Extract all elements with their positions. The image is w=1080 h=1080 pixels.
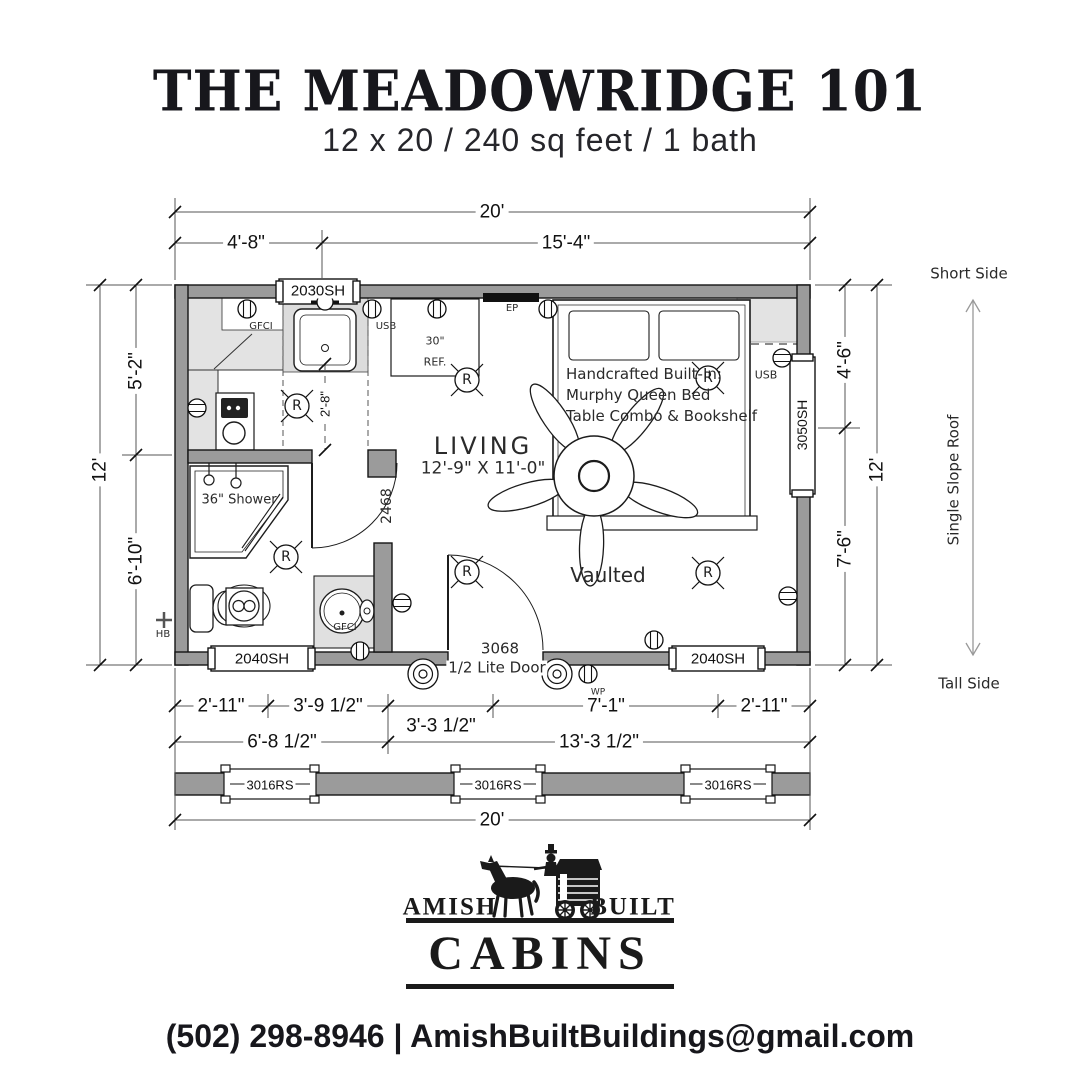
dim-left-upper: 5'-2" bbox=[127, 348, 146, 394]
recessed-light-icon: R bbox=[703, 566, 713, 580]
dim-wall-overall: 20' bbox=[476, 811, 509, 830]
brand-name: CABINS bbox=[428, 930, 651, 978]
bed-note-line2: Murphy Queen Bed bbox=[566, 386, 710, 404]
logo-horse-wagon-icon bbox=[480, 844, 602, 920]
roof-slope-label: Single Slope Roof bbox=[947, 415, 962, 546]
window-transom-3: 3016RS bbox=[703, 779, 754, 792]
electrical-panel bbox=[483, 293, 539, 302]
dim-bottom-3: 3'-3 1/2" bbox=[402, 717, 480, 736]
label-electrical-panel: EP bbox=[506, 304, 518, 314]
dim-right-lower: 7'-6" bbox=[836, 526, 855, 572]
label-gfci-kitchen: GFCI bbox=[249, 322, 272, 332]
hose-bib-icon bbox=[156, 612, 172, 628]
brand-word-right: BUILT bbox=[590, 895, 676, 920]
door-entry-type: 1/2 Lite Door bbox=[446, 661, 547, 676]
exhaust-fan bbox=[218, 585, 270, 627]
window-kitchen: 2030SH bbox=[289, 284, 347, 299]
label-gfci-bath: GFCI bbox=[333, 623, 356, 633]
window-living-right: 3050SH bbox=[795, 398, 809, 453]
bed-note-line1: Handcrafted Built-In: bbox=[566, 365, 722, 383]
window-bath: 2040SH bbox=[233, 652, 291, 667]
recessed-light-icon: R bbox=[281, 550, 291, 564]
window-transom-2: 3016RS bbox=[473, 779, 524, 792]
fridge-label: REF. bbox=[424, 357, 447, 368]
logo-divider-bottom bbox=[406, 984, 674, 989]
dim-bottom-right-total: 13'-3 1/2" bbox=[555, 733, 643, 752]
dim-bottom-2: 3'-9 1/2" bbox=[289, 697, 367, 716]
dim-top-left: 4'-8" bbox=[223, 234, 269, 253]
page-title: THE MEADOWRIDGE 101 bbox=[153, 64, 927, 120]
dim-bottom-left-total: 6'-8 1/2" bbox=[243, 733, 321, 752]
room-ceiling-note: Vaulted bbox=[570, 565, 645, 585]
window-living-bottom: 2040SH bbox=[689, 652, 747, 667]
recessed-light-icon: R bbox=[292, 399, 302, 413]
window-transom-1: 3016RS bbox=[245, 779, 296, 792]
page-subtitle: 12 x 20 / 240 sq feet / 1 bath bbox=[322, 124, 758, 156]
label-usb-kitchen: USB bbox=[376, 322, 397, 332]
fixture-shower-label: 36" Shower bbox=[201, 494, 276, 507]
floorplan-drawing bbox=[0, 0, 1080, 1080]
dim-left-lower: 6'-10" bbox=[127, 533, 146, 589]
roof-short-side: Short Side bbox=[930, 267, 1007, 282]
recessed-light-icon: R bbox=[462, 373, 472, 387]
bed-note-line3: Table Combo & Bookshelf bbox=[566, 407, 757, 425]
label-weatherproof: WP bbox=[591, 689, 605, 698]
recessed-light-icon: R bbox=[703, 371, 713, 385]
dim-bottom-5: 2'-11" bbox=[737, 697, 792, 716]
flyer-page: THE MEADOWRIDGE 101 12 x 20 / 240 sq fee… bbox=[0, 0, 1080, 1080]
roof-tall-side: Tall Side bbox=[938, 677, 999, 692]
dim-top-right: 15'-4" bbox=[538, 234, 594, 253]
door-bath-label: 2468 bbox=[380, 488, 394, 524]
dim-right-overall: 12' bbox=[868, 454, 887, 487]
roof-slope-arrow bbox=[966, 300, 980, 655]
brand-word-left: AMISH bbox=[403, 895, 498, 920]
dim-top-overall: 20' bbox=[476, 203, 509, 222]
dim-counter-depth: 2'-8" bbox=[319, 387, 332, 421]
room-living-name: LIVING bbox=[434, 434, 533, 458]
dim-bottom-1: 2'-11" bbox=[194, 697, 249, 716]
kitchen-sink bbox=[294, 309, 356, 371]
range bbox=[216, 393, 254, 450]
contact-info: (502) 298-8946 | AmishBuiltBuildings@gma… bbox=[166, 1020, 915, 1052]
door-entry-size: 3068 bbox=[479, 642, 521, 657]
dim-bottom-4: 7'-1" bbox=[583, 697, 629, 716]
label-usb-living: USB bbox=[755, 370, 778, 381]
fridge-size-label: 30" bbox=[425, 336, 444, 347]
recessed-light-icon: R bbox=[462, 565, 472, 579]
label-hose-bib: HB bbox=[156, 630, 170, 640]
dim-right-upper: 4'-6" bbox=[836, 337, 855, 383]
dim-left-overall: 12' bbox=[91, 454, 110, 487]
room-living-size: 12'-9" X 11'-0" bbox=[421, 461, 546, 478]
